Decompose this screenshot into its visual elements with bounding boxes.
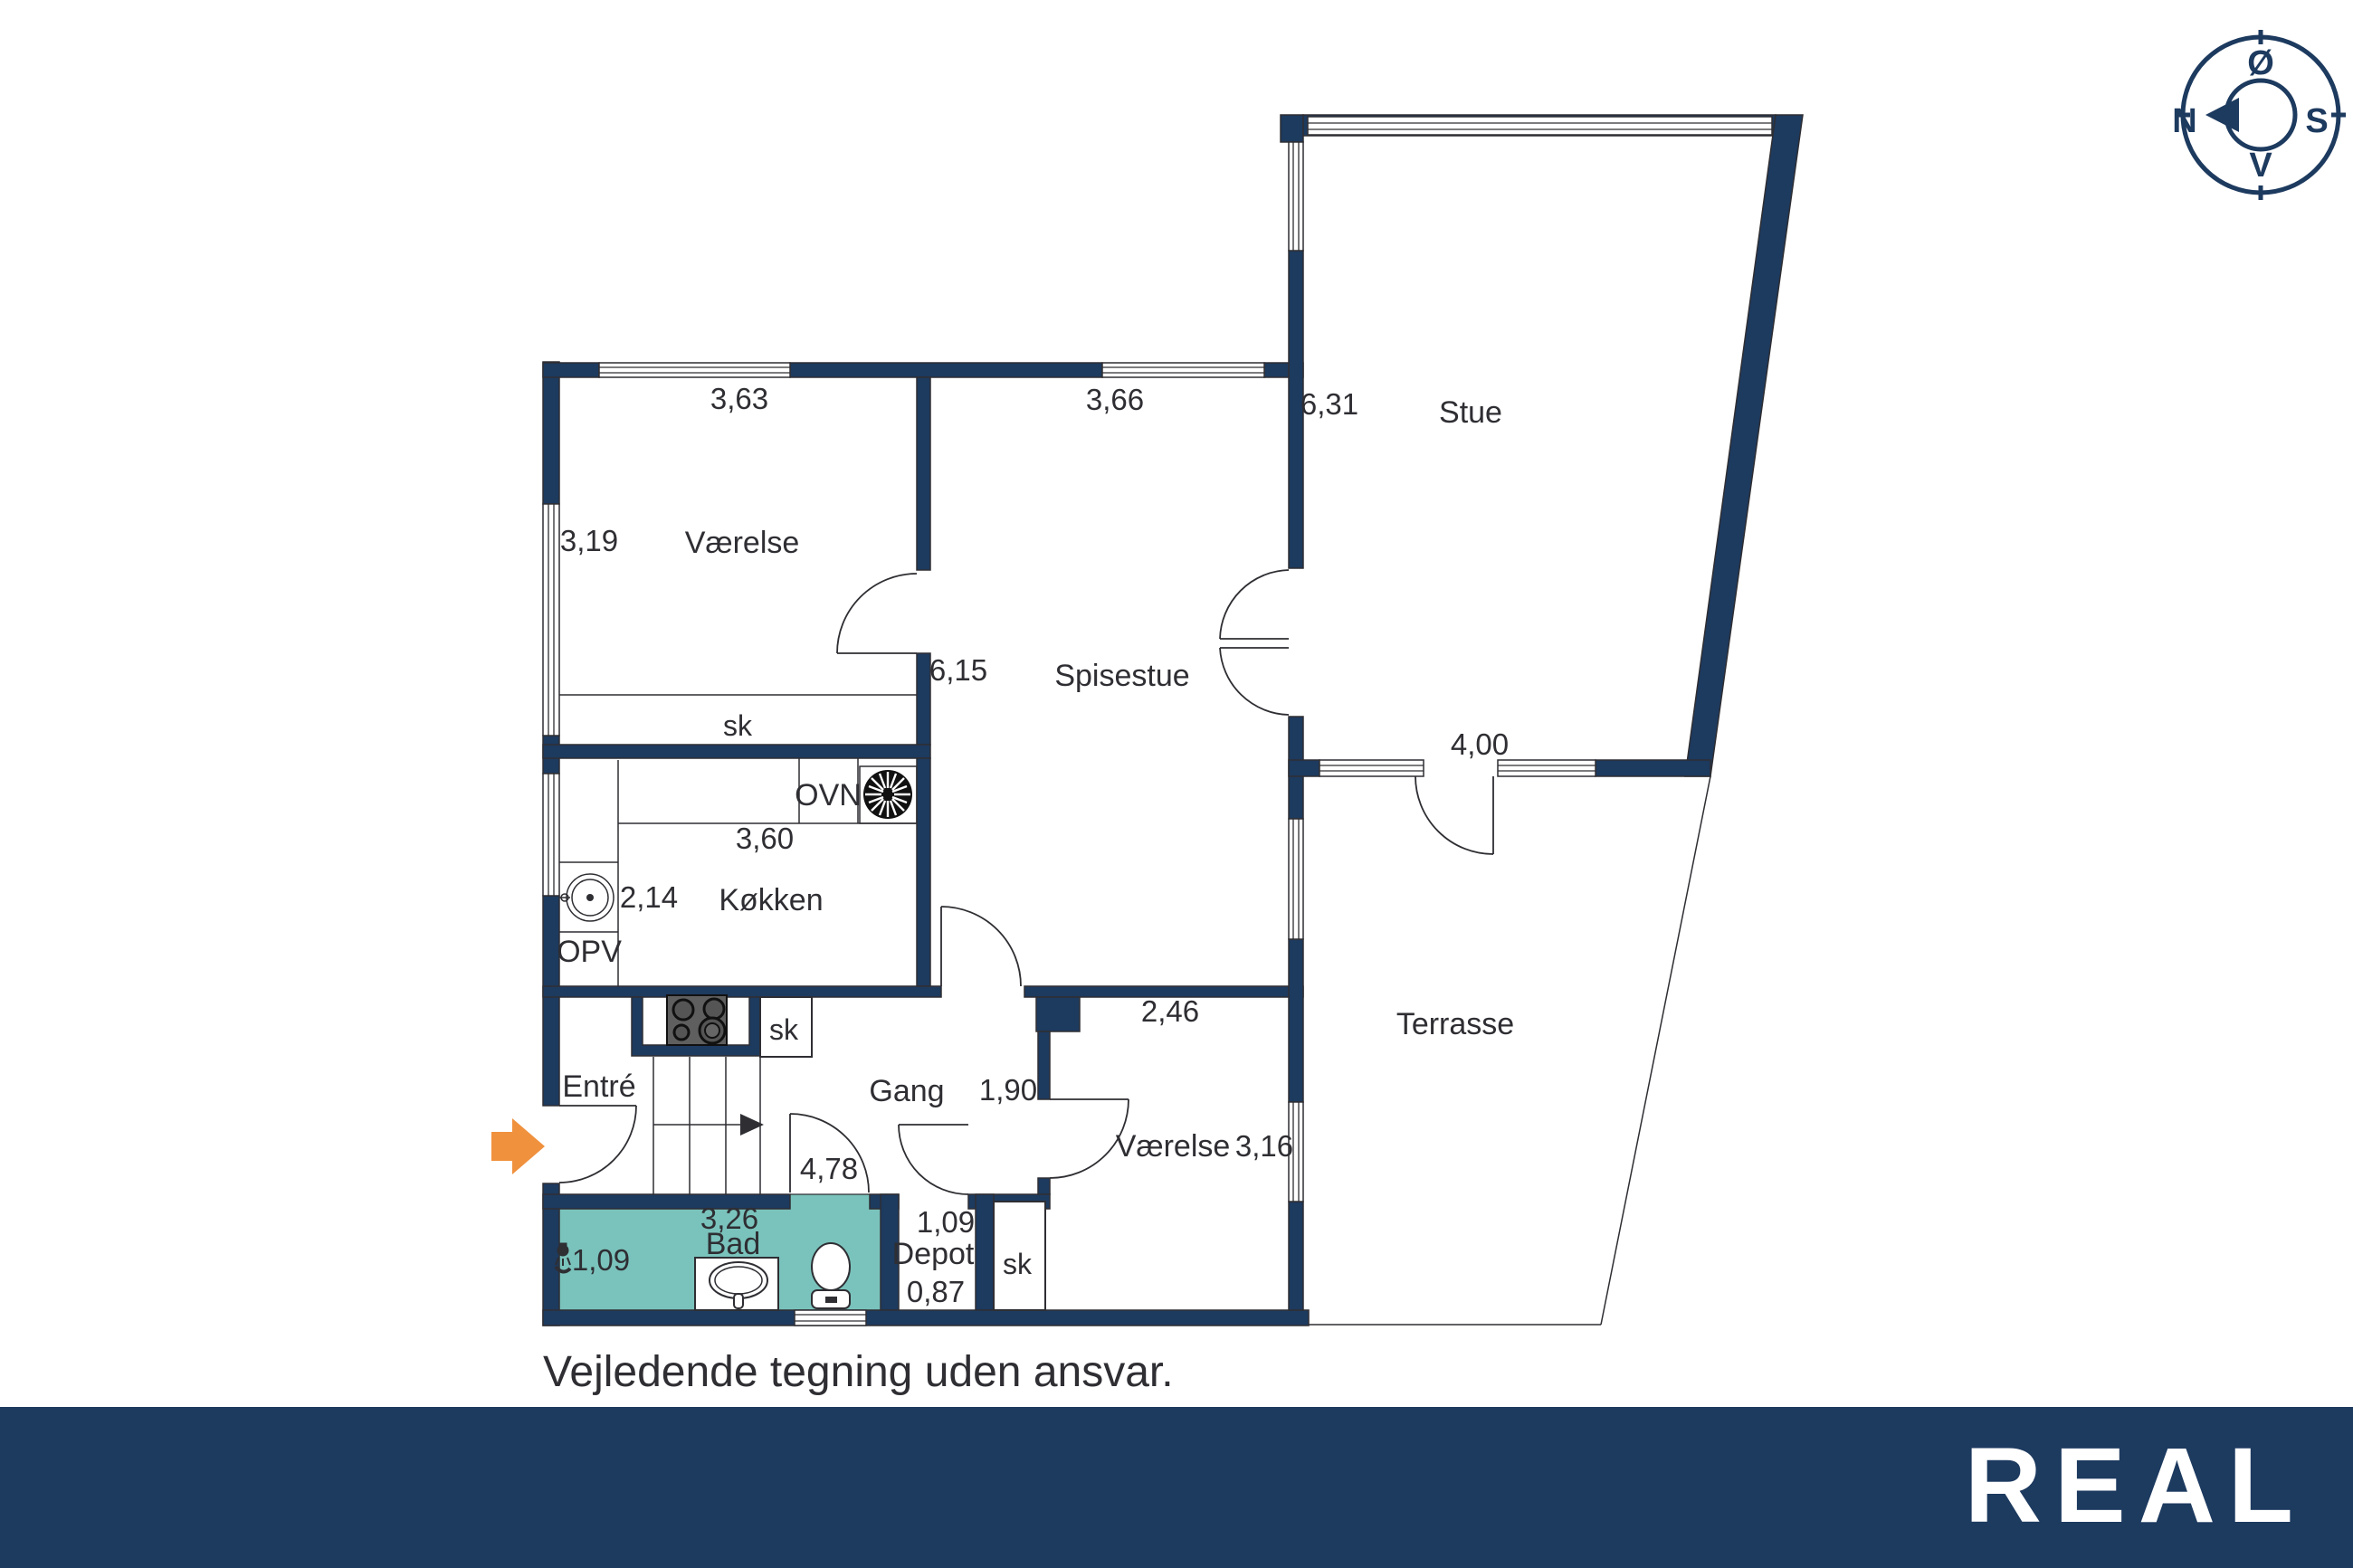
bathroom-label: Bad [706,1227,761,1261]
window-living-top [1308,117,1772,135]
vanity-sink-icon [695,1258,778,1310]
disclaimer-text: Vejledende tegning uden ansvar. [543,1348,1174,1396]
bathroom-height: 1,09 [572,1243,630,1277]
kitchen-height: 2,14 [620,880,678,914]
bedroom-bottom-closet-label: sk [1003,1248,1033,1280]
stove-icon [667,995,727,1045]
dining-height: 6,15 [929,653,987,687]
depot-height: 1,09 [917,1205,975,1239]
oven-label: OVN [795,778,862,813]
compass-north: N [2172,102,2196,140]
compass-south: S [2305,102,2328,140]
window-terrace-left [1319,760,1424,776]
bedroom-top-closet-label: sk [723,709,753,742]
compass-east: Ø [2247,44,2274,82]
window-left-kitchen [543,774,559,896]
bedroom-top-label: Værelse [685,526,800,560]
compass-needle [2205,98,2239,132]
compass-west: V [2249,147,2272,185]
terrace-label: Terrasse [1396,1007,1514,1041]
depot-label: Depot [892,1237,975,1271]
kitchen-closet-label: sk [769,1013,799,1046]
window-dining-terrace [1289,819,1303,939]
kitchen-sink-icon [559,874,614,921]
bedroom-top-width: 3,63 [710,382,768,415]
dining-width: 3,66 [1086,383,1144,416]
hallway-length: 4,78 [800,1152,858,1185]
window-left-bedroom [543,504,559,736]
door-depot [899,1125,968,1194]
window-bathroom [795,1310,866,1326]
depot-width: 0,87 [907,1275,965,1308]
bedroom-bottom-height: 3,16 [1235,1129,1293,1163]
dining-label: Spisestue [1054,659,1189,693]
extractor-fan-icon [860,766,917,823]
living-label: Stue [1439,395,1502,430]
terrace-width: 4,00 [1451,727,1509,761]
floorplan-page: N S Ø V 3,63 3,19 Værelse sk 3,66 Spises… [0,0,2353,1568]
bedroom-top-height: 3,19 [560,524,618,557]
door-dining [941,907,1021,986]
entry-label: Entré [562,1069,635,1104]
kitchen-label: Køkken [719,883,823,917]
kitchen-width: 3,60 [736,822,794,855]
floorplan-drawing: N S Ø V 3,63 3,19 Værelse sk 3,66 Spises… [0,0,2353,1568]
toilet-icon [812,1243,850,1308]
window-dining-top [1102,363,1264,377]
entrance-arrow-icon [491,1118,545,1174]
window-living-left [1289,142,1303,251]
labels: 3,63 3,19 Værelse sk 3,66 Spisestue 6,15… [557,382,1514,1308]
bedroom-bottom-width: 2,46 [1141,994,1199,1028]
door-bedroom-top [837,574,917,653]
window-terrace-right [1498,760,1596,776]
bedroom-bottom-label: Værelse [1116,1129,1231,1164]
living-height: 6,31 [1300,387,1358,421]
door-terrace [1415,776,1493,854]
hallway-width: 1,90 [979,1073,1037,1107]
door-entry [559,1106,636,1183]
dishwasher-label: OPV [557,935,622,969]
compass-icon: N S Ø V [2172,30,2346,200]
hallway-label: Gang [869,1074,944,1108]
door-double-living [1220,570,1289,715]
brand-logo: REAL [1965,1426,2306,1545]
staircase [653,1057,764,1194]
window-bedroom-top [599,363,790,377]
terrace-outline [1309,776,1710,1325]
